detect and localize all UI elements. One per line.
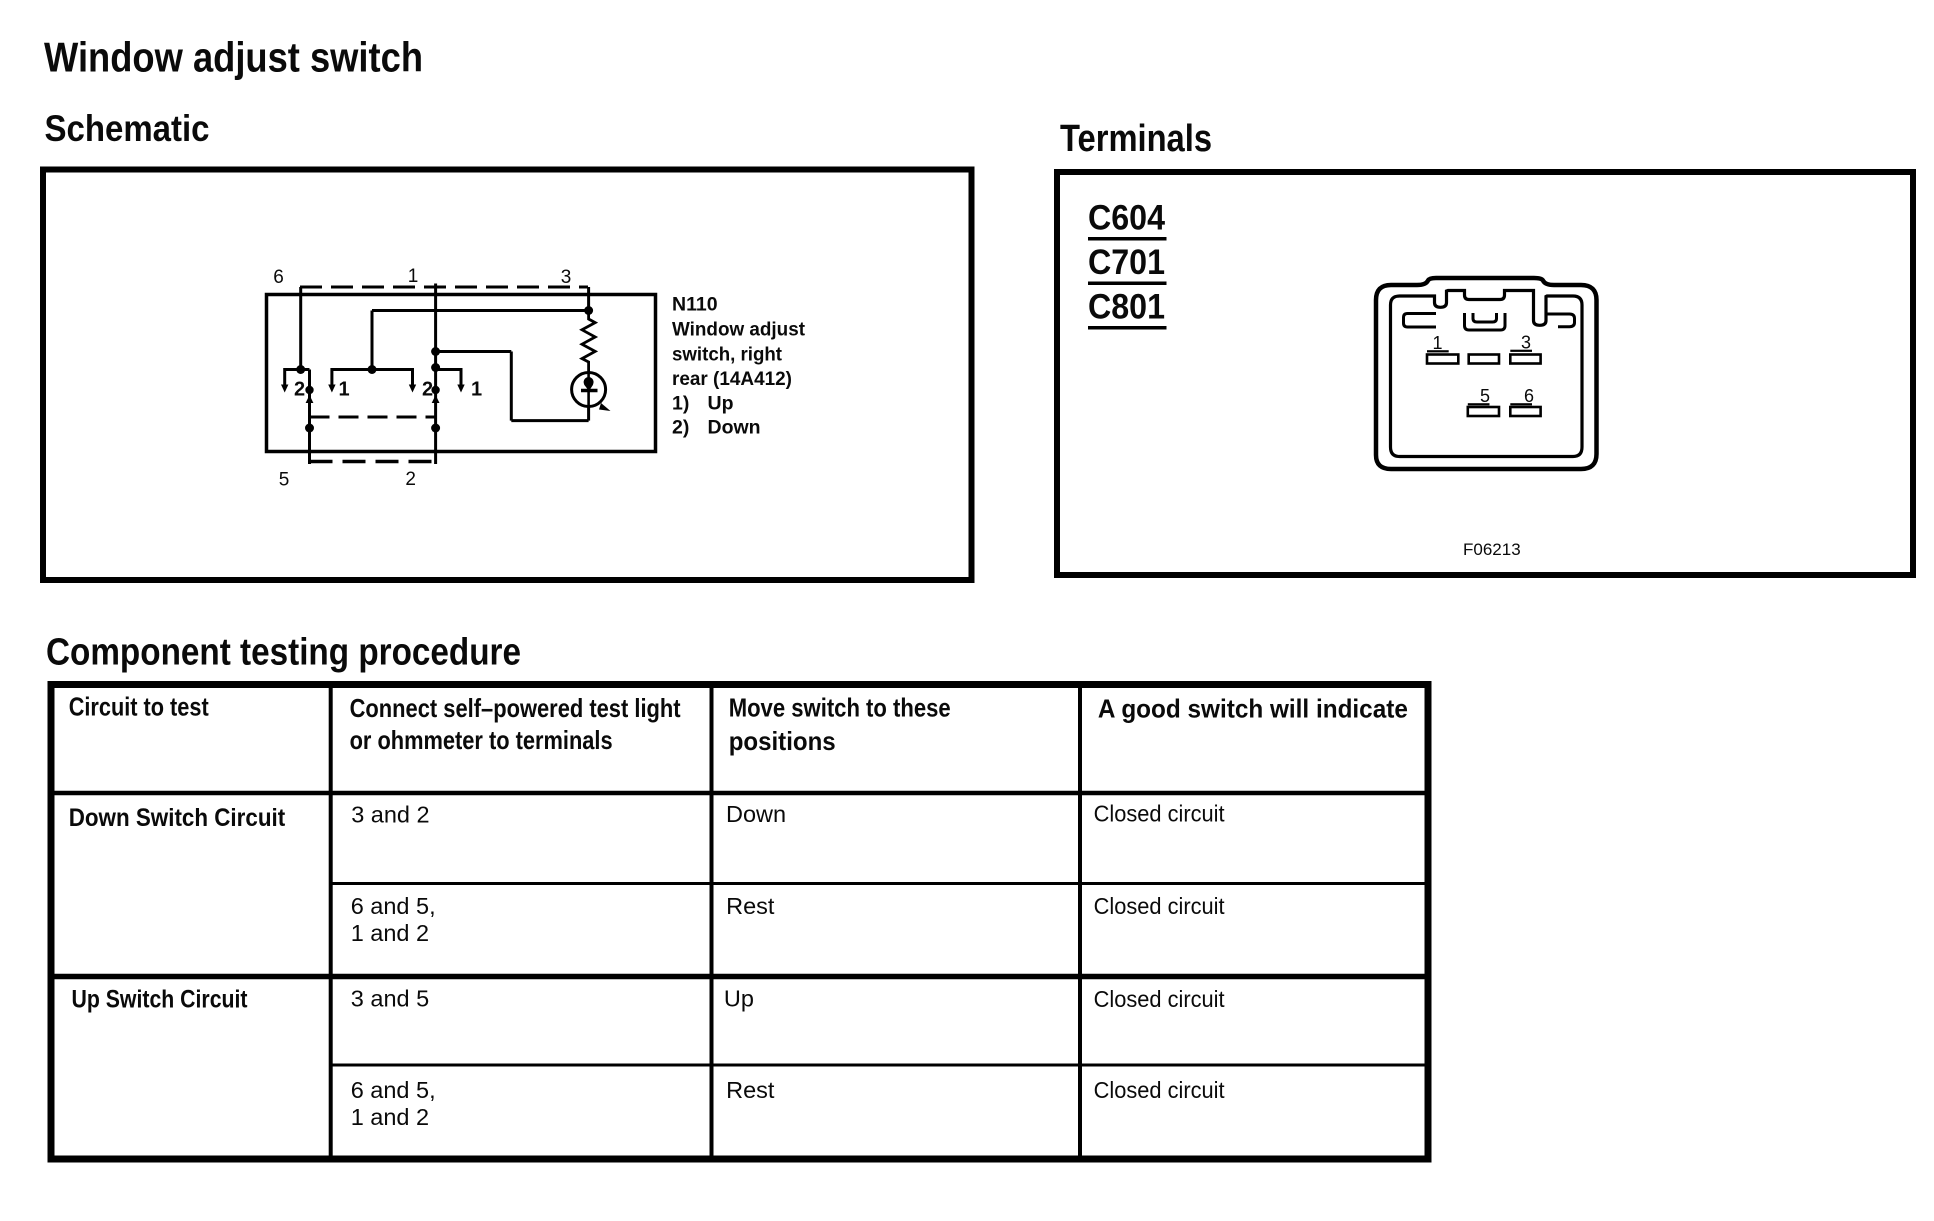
svg-text:3 and 2: 3 and 2: [351, 801, 429, 827]
svg-text:Move switch to these: Move switch to these: [729, 693, 951, 723]
svg-text:6: 6: [1524, 386, 1534, 406]
svg-text:Window adjust: Window adjust: [672, 319, 805, 341]
svg-text:positions: positions: [729, 726, 836, 756]
svg-text:1: 1: [471, 379, 482, 401]
svg-text:C801: C801: [1088, 286, 1165, 326]
svg-text:1: 1: [338, 379, 349, 401]
svg-text:Window adjust switch: Window adjust switch: [44, 34, 423, 81]
svg-text:5: 5: [1480, 386, 1490, 406]
svg-text:Closed circuit: Closed circuit: [1094, 893, 1225, 919]
svg-text:Circuit to test: Circuit to test: [69, 692, 209, 722]
svg-text:Rest: Rest: [726, 893, 775, 919]
svg-text:rear (14A412): rear (14A412): [672, 368, 792, 390]
svg-text:Down: Down: [708, 417, 761, 439]
svg-text:2): 2): [672, 417, 689, 439]
svg-text:1): 1): [672, 393, 689, 415]
svg-text:1: 1: [1432, 333, 1442, 353]
svg-text:Up: Up: [724, 985, 754, 1011]
svg-text:3 and 5: 3 and 5: [351, 985, 429, 1011]
svg-text:2: 2: [294, 379, 305, 401]
svg-text:Component testing procedure: Component testing procedure: [46, 632, 521, 674]
svg-text:6 and 5,: 6 and 5,: [351, 1077, 436, 1103]
svg-text:2: 2: [422, 379, 433, 401]
svg-text:1 and 2: 1 and 2: [351, 1104, 429, 1130]
svg-text:Terminals: Terminals: [1060, 118, 1212, 160]
svg-text:C701: C701: [1088, 242, 1165, 282]
svg-text:A good switch will indicate: A good switch will indicate: [1098, 694, 1408, 724]
svg-text:Up: Up: [708, 393, 734, 415]
svg-text:or ohmmeter to terminals: or ohmmeter to terminals: [350, 725, 613, 755]
svg-text:Down Switch Circuit: Down Switch Circuit: [69, 804, 286, 832]
svg-text:Connect self–powered test ligh: Connect self–powered test light: [350, 693, 681, 723]
svg-text:Closed circuit: Closed circuit: [1094, 801, 1225, 827]
svg-text:2: 2: [405, 469, 416, 490]
svg-text:switch, right: switch, right: [672, 343, 782, 365]
svg-text:Up Switch Circuit: Up Switch Circuit: [72, 986, 249, 1014]
svg-text:6: 6: [273, 267, 284, 288]
svg-text:6 and 5,: 6 and 5,: [351, 893, 436, 919]
svg-text:Closed circuit: Closed circuit: [1094, 1077, 1225, 1103]
svg-text:1: 1: [408, 266, 419, 287]
svg-text:C604: C604: [1088, 198, 1165, 238]
svg-text:N110: N110: [672, 293, 718, 315]
svg-text:3: 3: [1521, 333, 1531, 353]
svg-text:Rest: Rest: [726, 1077, 775, 1103]
svg-text:Down: Down: [726, 801, 786, 827]
svg-text:Closed circuit: Closed circuit: [1094, 986, 1225, 1012]
svg-text:Schematic: Schematic: [45, 108, 210, 149]
svg-text:5: 5: [279, 470, 290, 491]
svg-text:3: 3: [561, 267, 572, 288]
svg-text:1 and 2: 1 and 2: [351, 920, 429, 946]
svg-text:F06213: F06213: [1463, 540, 1521, 559]
